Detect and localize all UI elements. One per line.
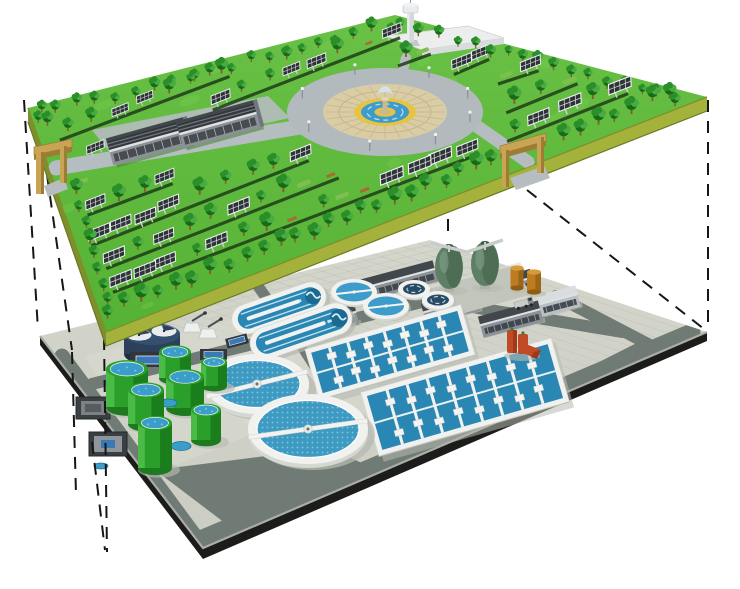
substation-box: [89, 432, 127, 456]
cutaway-guide-line: [92, 442, 105, 550]
facility-cutaway-illustration: [0, 0, 740, 589]
ground-pool: [171, 442, 191, 451]
cutaway-scene: [0, 0, 740, 589]
